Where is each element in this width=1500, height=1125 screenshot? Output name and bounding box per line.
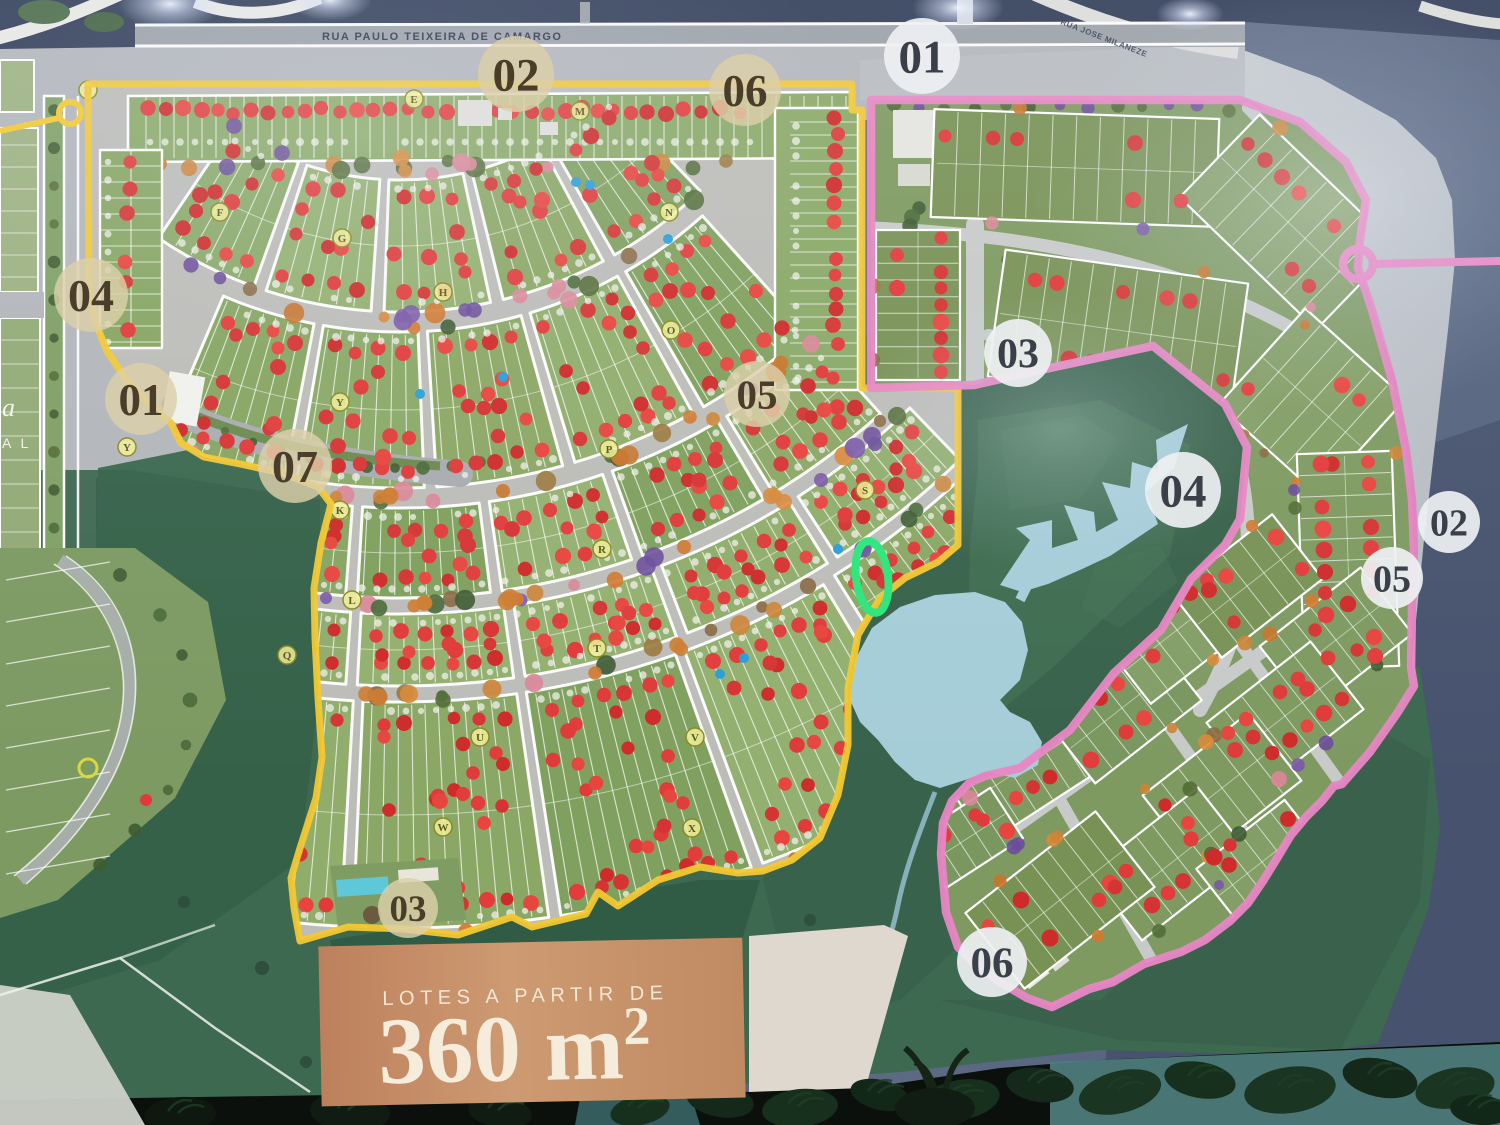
svg-text:01: 01 bbox=[119, 375, 164, 425]
svg-text:02: 02 bbox=[1430, 502, 1468, 544]
svg-text:06: 06 bbox=[723, 66, 768, 116]
svg-text:06: 06 bbox=[971, 940, 1014, 987]
svg-text:03: 03 bbox=[390, 889, 427, 930]
svg-text:05: 05 bbox=[1373, 558, 1411, 600]
svg-text:01: 01 bbox=[899, 31, 946, 83]
svg-text:07: 07 bbox=[272, 441, 318, 492]
svg-text:03: 03 bbox=[997, 332, 1039, 378]
svg-text:05: 05 bbox=[737, 371, 778, 417]
svg-text:04: 04 bbox=[1160, 465, 1207, 517]
svg-text:02: 02 bbox=[493, 49, 540, 101]
svg-text:04: 04 bbox=[68, 270, 114, 321]
svg-text:360 m2: 360 m2 bbox=[377, 993, 652, 1105]
